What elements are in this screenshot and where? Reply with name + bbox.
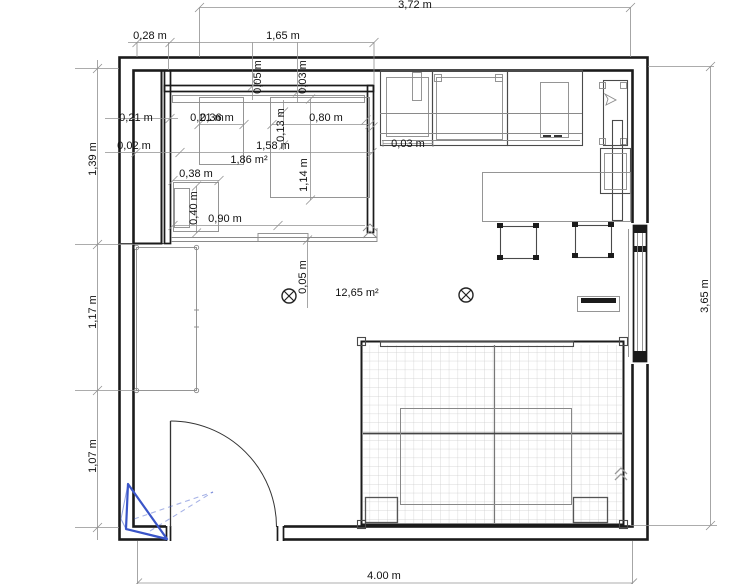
area-label-closet: 1,86 m² [230, 154, 268, 166]
desk-unit-left[interactable] [381, 71, 433, 146]
desk-unit-right[interactable] [508, 71, 583, 146]
ceiling-light-2[interactable] [459, 288, 473, 302]
stool-2[interactable] [572, 222, 614, 258]
wall-shelf[interactable] [578, 297, 620, 312]
stool-1[interactable] [497, 223, 539, 260]
dim-label-shelf-width: 0,38 m [179, 168, 213, 180]
dim-label-desk-gap: 0,03 m [391, 138, 425, 150]
dim-label-left-mid: 1,17 m [87, 295, 99, 329]
dim-label-left-bottom: 1,07 m [87, 439, 99, 473]
closet-rod[interactable] [173, 96, 365, 103]
dim-label-mid-gap: 0,05 m [297, 260, 309, 294]
dim-label-closet-inner: 1,58 m [256, 140, 290, 152]
office-chair[interactable] [600, 81, 628, 146]
dim-label-top-gap-a: 0,05 m [252, 60, 264, 94]
door-swing-arc [171, 421, 277, 527]
dim-label-cabinet-c: 0,80 m [309, 112, 343, 124]
window[interactable] [629, 223, 650, 364]
opening-chevron-icon [363, 224, 377, 231]
bed[interactable] [358, 338, 628, 529]
dim-label-wall-gap: 0,02 m [117, 140, 151, 152]
dim-label-cabinet-depth-small: 0,13 m [275, 108, 287, 142]
dim-label-cabinet-b: 0,36 m [200, 112, 234, 124]
dim-label-top-offset: 0,28 m [133, 30, 167, 42]
side-table[interactable] [483, 173, 631, 222]
dim-label-left-top: 1,39 m [87, 142, 99, 176]
door-opening [166, 524, 284, 542]
wardrobe-column[interactable] [134, 71, 162, 244]
dim-label-cabinet-depth: 1,14 m [298, 158, 310, 192]
desk-unit-middle[interactable] [433, 71, 508, 146]
area-label-room: 12,65 m² [335, 287, 379, 299]
wardrobe-box[interactable] [134, 245, 199, 392]
dim-label-top-gap-b: 0,03 m [297, 60, 309, 94]
dim-label-left-column: 0,21 m [119, 112, 153, 124]
dim-label-right-total: 3,65 m [699, 279, 711, 313]
handle-icon [435, 75, 442, 82]
laptop [541, 83, 569, 138]
door[interactable] [171, 421, 277, 527]
dim-label-opening: 0,90 m [208, 213, 242, 225]
dim-label-closet-width: 1,65 m [266, 30, 300, 42]
radiator[interactable] [601, 121, 631, 221]
dim-label-top-total: 3,72 m [398, 0, 432, 11]
handle-icon [496, 75, 503, 82]
dim-label-shelf-depth: 0,40 m [188, 191, 200, 225]
dim-label-bottom-total: 4.00 m [367, 570, 401, 582]
orientation-arrow-icon [605, 94, 616, 105]
floor-plan-canvas[interactable]: 3,72 m 0,28 m 1,65 m 0,05 m 0,03 m 0,21 … [0, 0, 741, 584]
ceiling-light-1[interactable] [282, 289, 296, 303]
